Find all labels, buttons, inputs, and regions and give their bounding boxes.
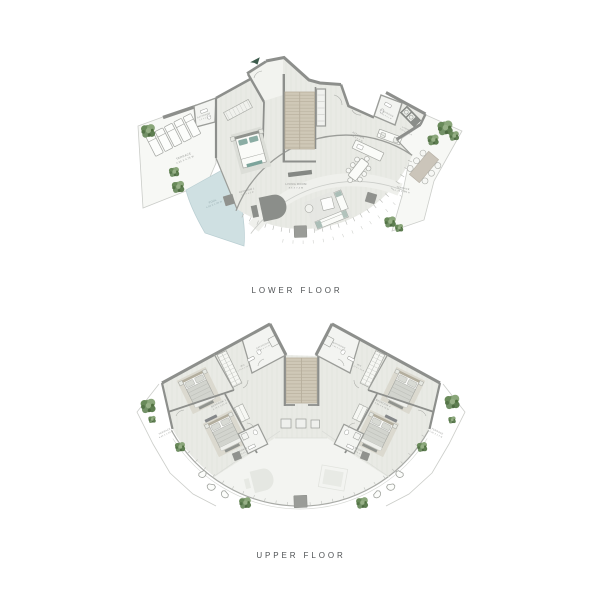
svg-text:LIVING ROOM: LIVING ROOM [285,182,307,186]
svg-text:LOWER FLOOR: LOWER FLOOR [251,286,342,295]
svg-text:8.5 X 7.4 M: 8.5 X 7.4 M [289,188,304,190]
svg-text:UPPER FLOOR: UPPER FLOOR [256,551,345,560]
